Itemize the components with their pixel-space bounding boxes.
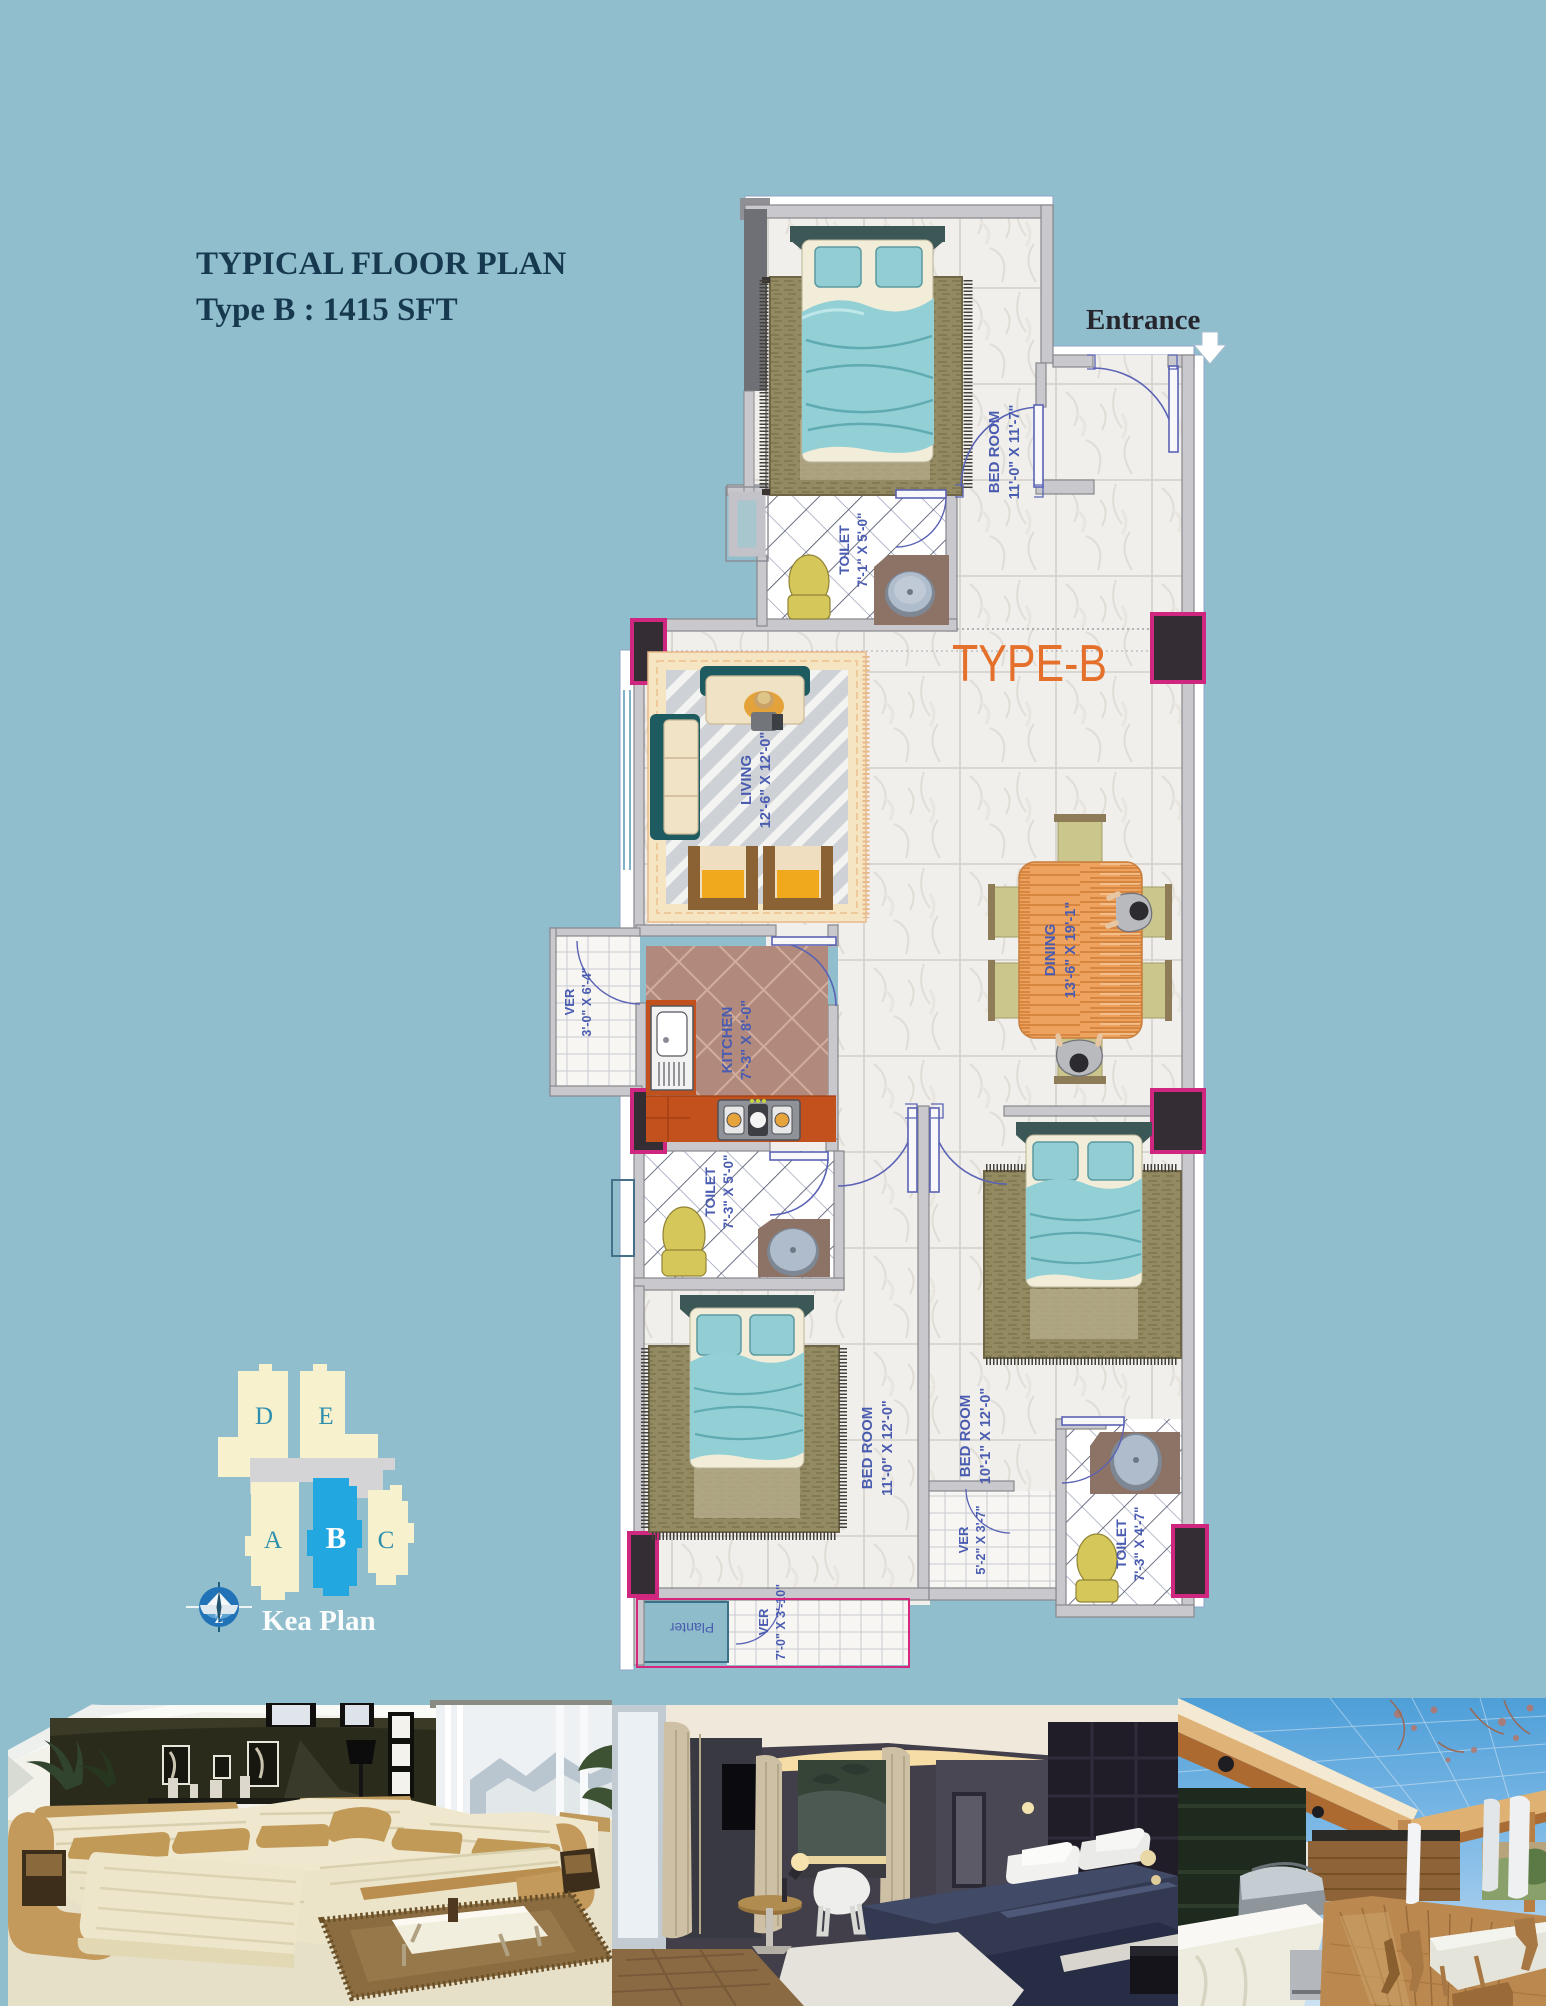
svg-text:13'-6" X 19'-1": 13'-6" X 19'-1" <box>1063 902 1079 998</box>
svg-text:7'-3" X 4'-7": 7'-3" X 4'-7" <box>1132 1507 1147 1582</box>
svg-text:7'-1" X 5'-0": 7'-1" X 5'-0" <box>855 513 870 588</box>
svg-text:VER: VER <box>562 988 577 1015</box>
svg-text:TOILET: TOILET <box>836 525 852 575</box>
svg-text:Planter: Planter <box>669 1620 714 1636</box>
svg-text:Entrance: Entrance <box>1086 304 1201 336</box>
svg-text:7'-0" X 3'-10": 7'-0" X 3'-10" <box>774 1584 788 1660</box>
svg-text:KITCHEN: KITCHEN <box>719 1007 736 1074</box>
svg-text:A: A <box>264 1527 282 1554</box>
svg-text:11'-0" X 11'-7": 11'-0" X 11'-7" <box>1007 405 1023 500</box>
svg-text:TOILET: TOILET <box>1113 1519 1129 1569</box>
svg-text:D: D <box>255 1403 273 1430</box>
svg-text:DINING: DINING <box>1042 924 1059 977</box>
svg-text:BED ROOM: BED ROOM <box>957 1395 974 1478</box>
svg-text:12'-6" X 12'-0": 12'-6" X 12'-0" <box>758 732 774 828</box>
svg-text:11'-0" X 12'-0": 11'-0" X 12'-0" <box>880 1400 896 1496</box>
svg-text:B: B <box>326 1520 347 1555</box>
svg-text:TYPE-B: TYPE-B <box>952 635 1107 693</box>
svg-text:TYPICAL FLOOR PLAN: TYPICAL FLOOR PLAN <box>196 246 567 282</box>
svg-text:10'-1" X 12'-0": 10'-1" X 12'-0" <box>978 1388 994 1484</box>
svg-text:C: C <box>378 1527 395 1554</box>
svg-text:7'-3" X 5'-0": 7'-3" X 5'-0" <box>721 1155 736 1230</box>
svg-text:VER: VER <box>756 1608 771 1635</box>
svg-text:TOILET: TOILET <box>702 1167 718 1217</box>
svg-text:5'-2" X 3'-7": 5'-2" X 3'-7" <box>974 1505 988 1574</box>
svg-text:LIVING: LIVING <box>738 755 755 805</box>
svg-text:Type B : 1415 SFT: Type B : 1415 SFT <box>196 292 458 328</box>
svg-text:BED ROOM: BED ROOM <box>859 1407 876 1490</box>
svg-text:3'-0" X 6'-4": 3'-0" X 6'-4" <box>580 967 594 1036</box>
svg-text:BED ROOM: BED ROOM <box>986 411 1003 494</box>
svg-text:7'-3" X 8'-0": 7'-3" X 8'-0" <box>739 1000 755 1080</box>
svg-text:Kea Plan: Kea Plan <box>262 1605 376 1637</box>
svg-text:E: E <box>318 1403 333 1430</box>
svg-text:VER: VER <box>956 1526 971 1553</box>
